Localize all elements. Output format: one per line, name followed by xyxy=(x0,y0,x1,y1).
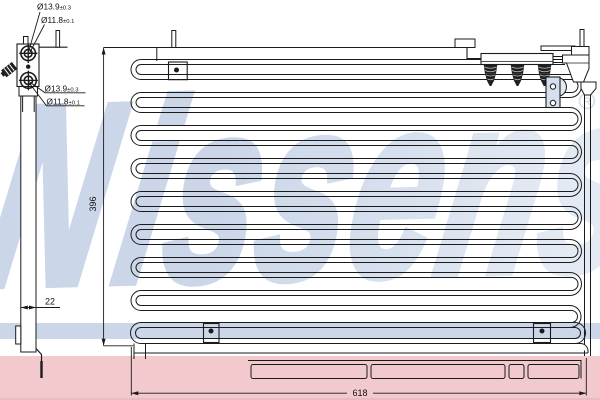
svg-text:Ø11.8±0.1: Ø11.8±0.1 xyxy=(41,15,74,25)
svg-text:Ø13.9±0.3: Ø13.9±0.3 xyxy=(37,2,72,12)
svg-text:618: 618 xyxy=(352,388,367,398)
svg-text:22: 22 xyxy=(45,297,55,307)
svg-text:Ø13.9±0.3: Ø13.9±0.3 xyxy=(45,84,80,94)
svg-text:Ø11.8±0.1: Ø11.8±0.1 xyxy=(47,97,80,107)
svg-text:396: 396 xyxy=(88,196,98,211)
